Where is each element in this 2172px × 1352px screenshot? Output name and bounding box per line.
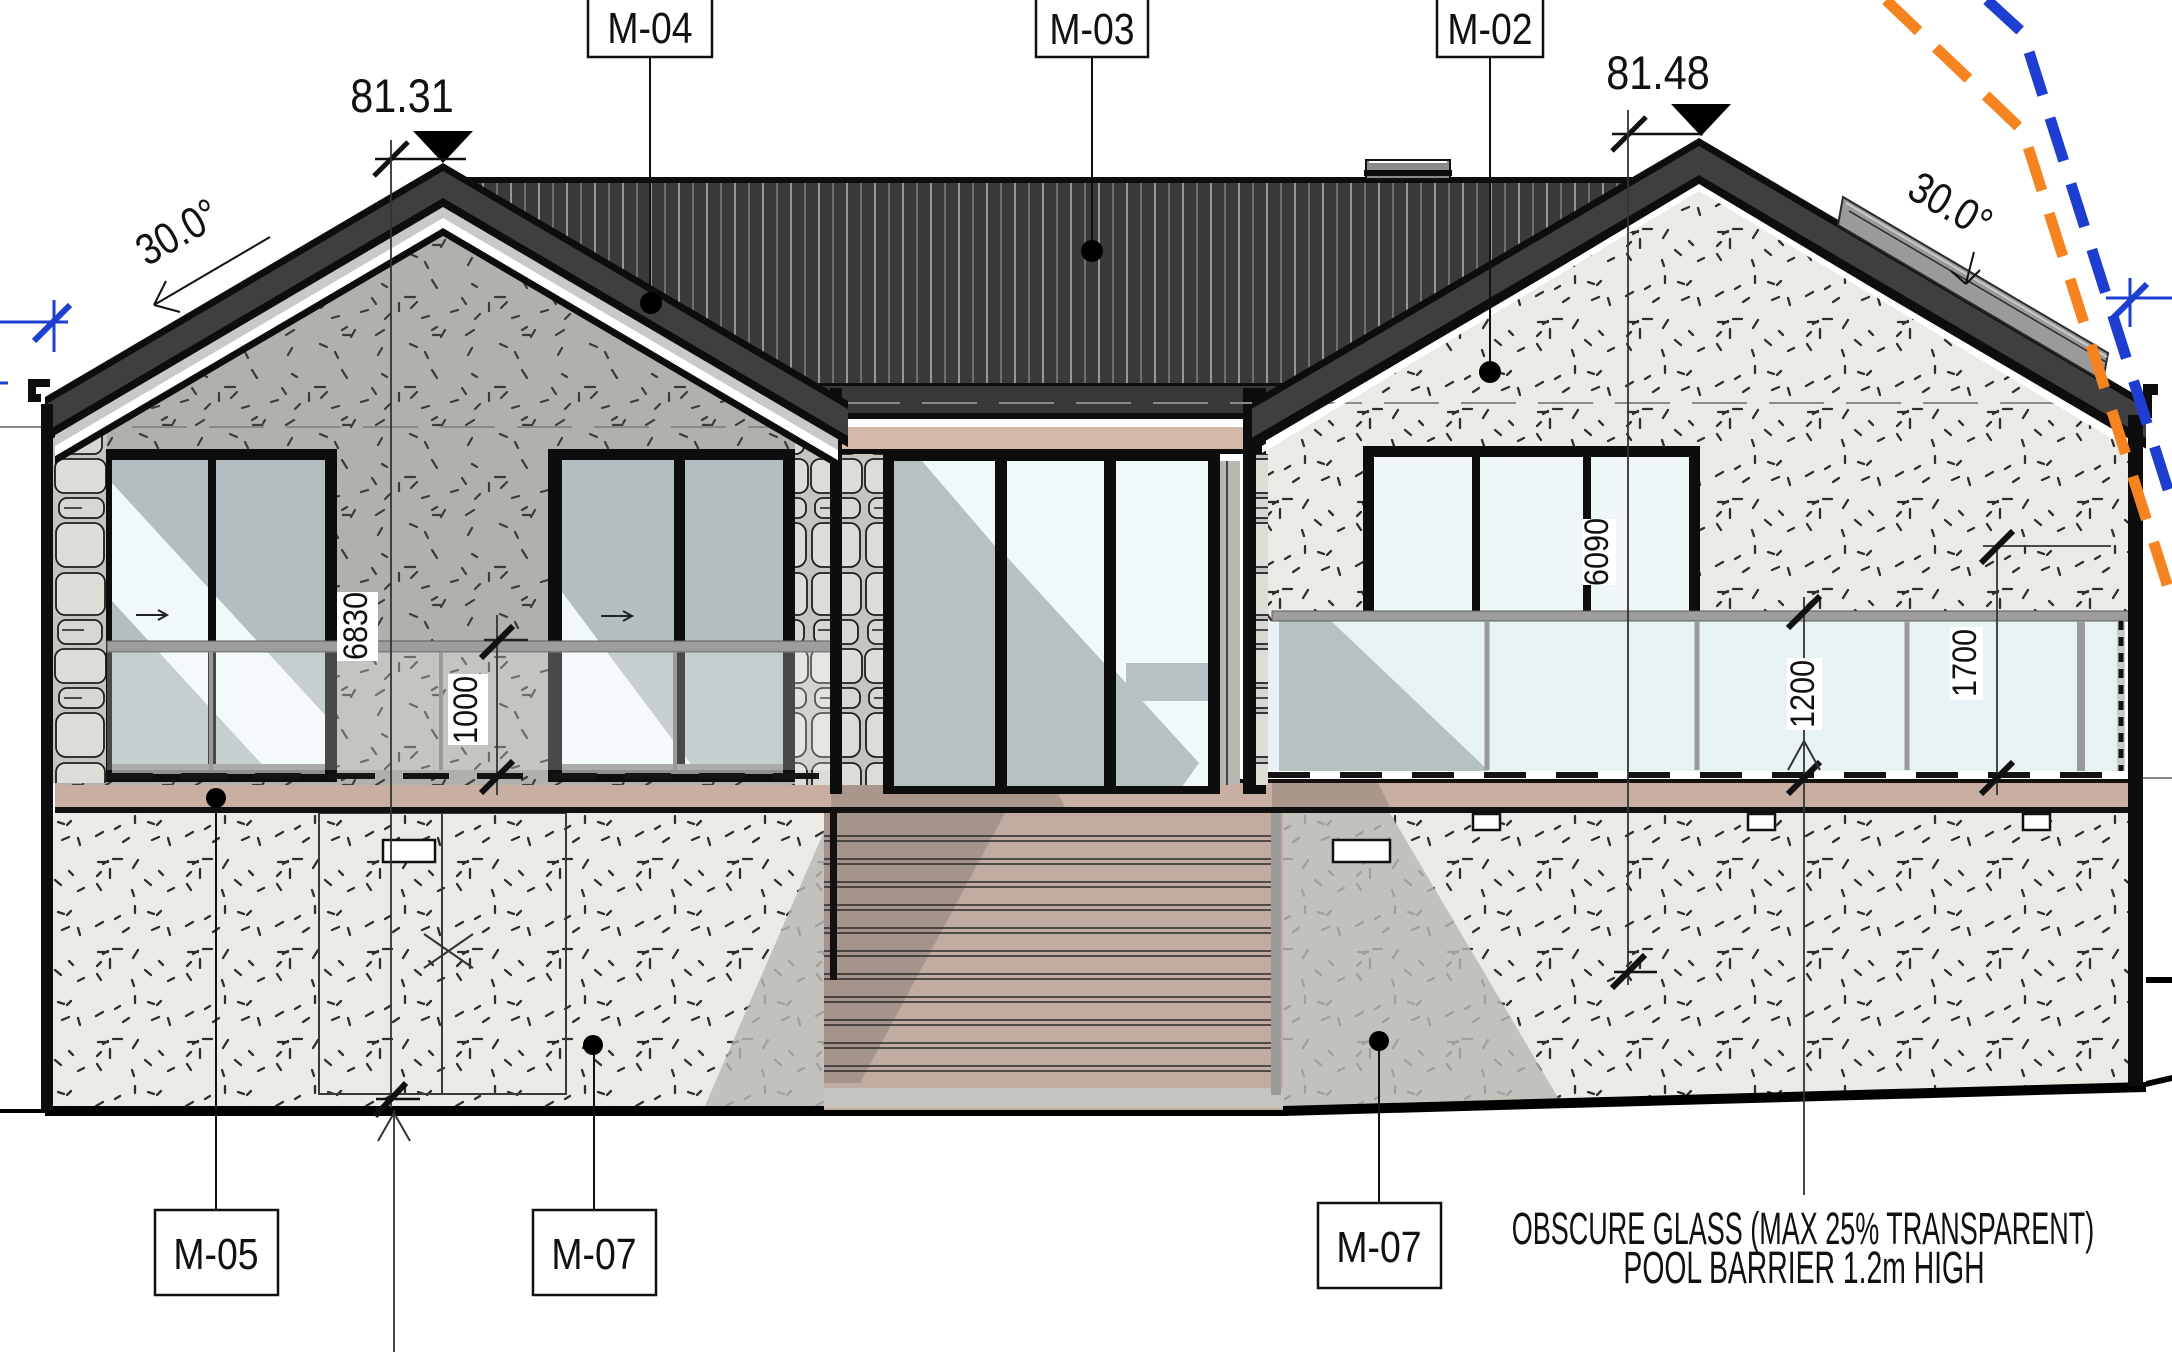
svg-text:81.31: 81.31 bbox=[350, 71, 453, 123]
svg-text:6090: 6090 bbox=[1578, 518, 1616, 586]
svg-text:M-02: M-02 bbox=[1447, 4, 1532, 54]
svg-text:6830: 6830 bbox=[337, 592, 375, 660]
svg-text:M-05: M-05 bbox=[173, 1229, 258, 1279]
svg-text:1200: 1200 bbox=[1784, 660, 1822, 728]
svg-text:M-07: M-07 bbox=[1336, 1222, 1421, 1272]
svg-text:81.48: 81.48 bbox=[1606, 48, 1709, 100]
svg-text:M-04: M-04 bbox=[607, 3, 692, 53]
svg-text:1700: 1700 bbox=[1946, 629, 1984, 697]
svg-text:M-07: M-07 bbox=[551, 1229, 636, 1279]
svg-text:1000: 1000 bbox=[447, 676, 485, 744]
svg-text:M-03: M-03 bbox=[1049, 4, 1134, 54]
svg-text:POOL BARRIER 1.2m HIGH: POOL BARRIER 1.2m HIGH bbox=[1623, 1242, 1984, 1292]
